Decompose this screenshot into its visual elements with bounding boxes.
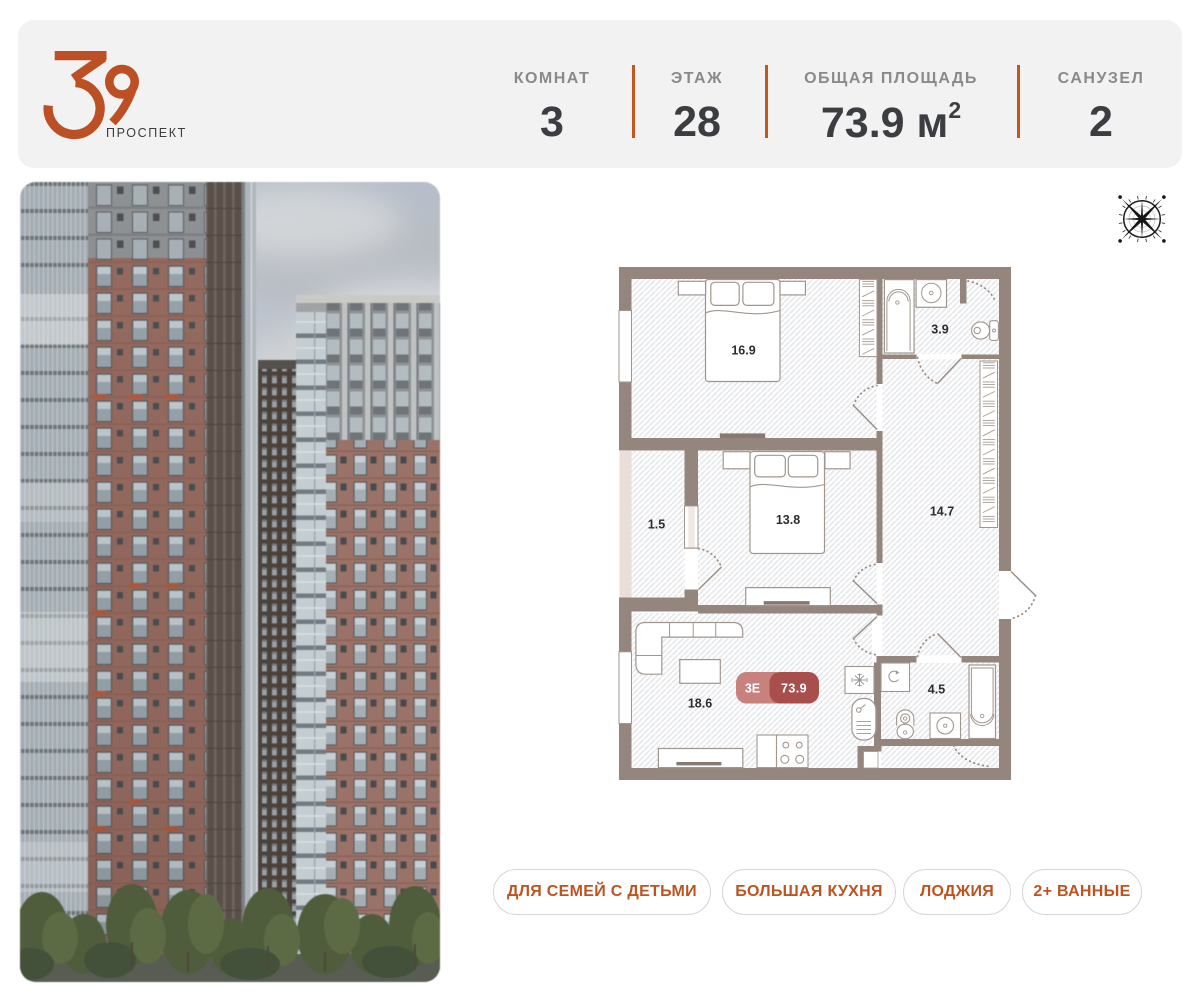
svg-text:14.7: 14.7 [930,505,954,519]
svg-text:73.9: 73.9 [781,682,807,696]
svg-text:ПРОСПЕКТ: ПРОСПЕКТ [106,126,187,140]
svg-text:16.9: 16.9 [731,344,755,358]
svg-text:1.5: 1.5 [648,518,665,532]
svg-text:18.6: 18.6 [688,697,712,711]
svg-text:4.5: 4.5 [928,683,945,697]
svg-text:13.8: 13.8 [776,513,800,527]
svg-text:3Е: 3Е [745,682,760,696]
svg-text:3.9: 3.9 [931,323,948,337]
